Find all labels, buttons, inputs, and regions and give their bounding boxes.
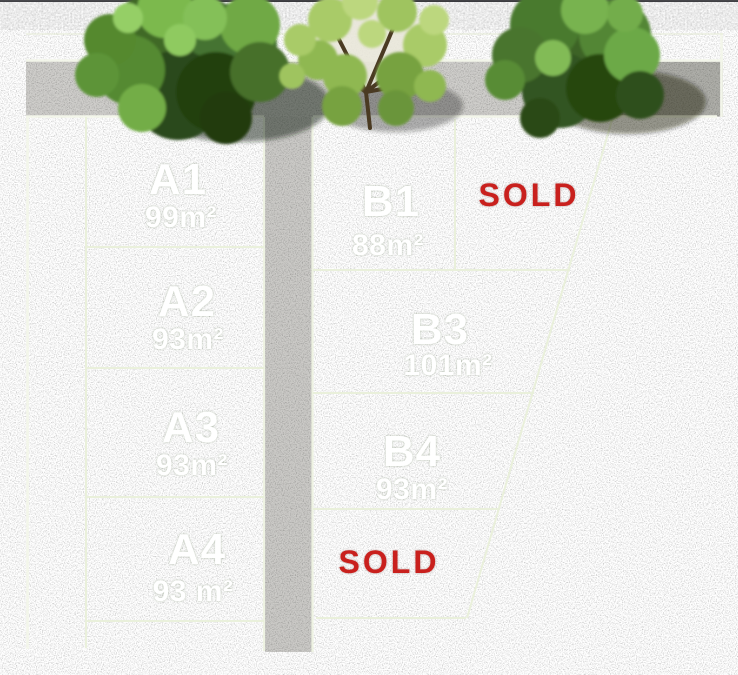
lot-b1-name: B1: [362, 180, 420, 224]
lot-a1-name: A1: [149, 158, 207, 202]
lot-a2-name: A2: [158, 280, 216, 324]
lot-b4-area: 93m²: [376, 475, 448, 505]
lot-a4-area: 93 m²: [153, 577, 234, 607]
site-plan: A1 99m² A2 93m² A3 93m² A4 93 m² B1 88m²…: [0, 0, 738, 675]
lot-b1-area: 88m²: [352, 231, 424, 261]
lot-b4-name: B4: [383, 430, 441, 474]
lot-a3-name: A3: [162, 406, 220, 450]
lot-a2-area: 93m²: [152, 325, 224, 355]
sold-label-bottom: SOLD: [339, 546, 440, 578]
lot-a3-area: 93m²: [156, 451, 228, 481]
lot-b3-name: B3: [411, 308, 469, 352]
lot-a4-name: A4: [168, 528, 226, 572]
lot-labels-layer: A1 99m² A2 93m² A3 93m² A4 93 m² B1 88m²…: [0, 0, 738, 675]
lot-b3-area: 101m²: [403, 351, 492, 381]
lot-a1-area: 99m²: [145, 203, 217, 233]
sold-label-top: SOLD: [479, 179, 580, 211]
